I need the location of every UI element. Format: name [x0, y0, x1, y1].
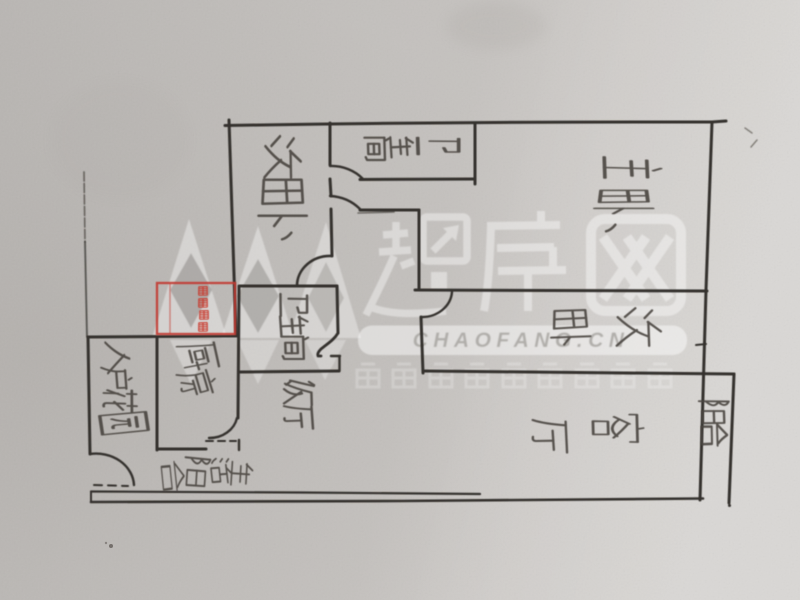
svg-text:CHAOFANG.CN: CHAOFANG.CN	[413, 329, 630, 352]
